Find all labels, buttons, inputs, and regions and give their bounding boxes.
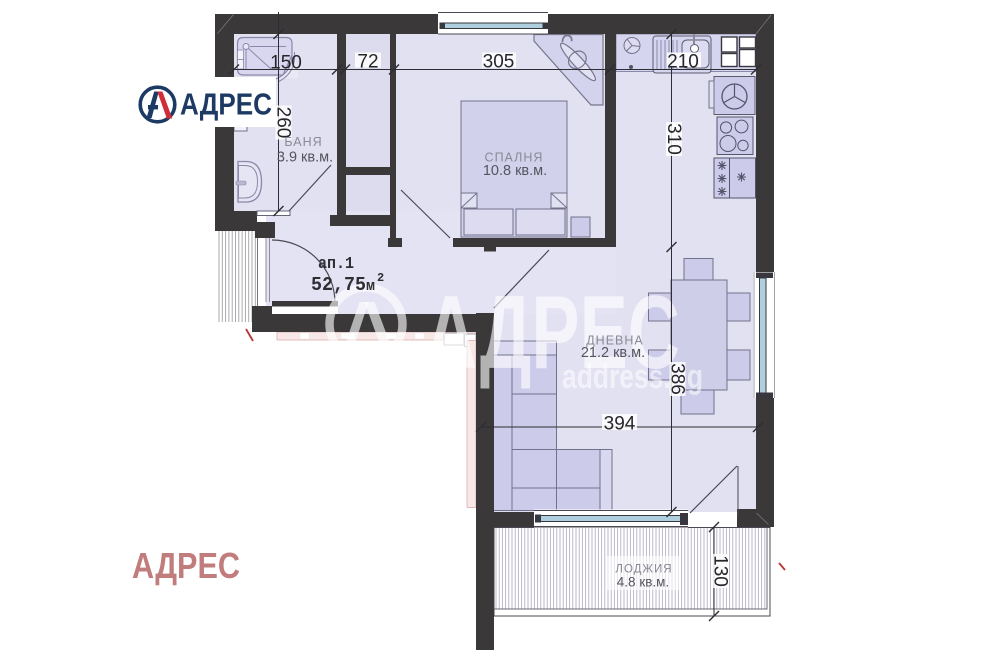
svg-text:305: 305 bbox=[483, 52, 515, 73]
svg-text:АДРЕС: АДРЕС bbox=[132, 545, 240, 586]
svg-text:394: 394 bbox=[604, 414, 636, 435]
svg-text:10.8 кв.м.: 10.8 кв.м. bbox=[483, 163, 547, 179]
svg-text:м: м bbox=[366, 278, 375, 295]
svg-text:210: 210 bbox=[667, 52, 699, 73]
svg-text:130: 130 bbox=[710, 555, 731, 587]
svg-text:21.2 кв.м.: 21.2 кв.м. bbox=[581, 345, 645, 361]
svg-text:2: 2 bbox=[377, 271, 384, 285]
svg-text:АДРЕС: АДРЕС bbox=[180, 87, 272, 122]
svg-text:4.8 кв.м.: 4.8 кв.м. bbox=[617, 575, 669, 590]
svg-text:310: 310 bbox=[663, 123, 684, 155]
svg-text:386: 386 bbox=[667, 363, 688, 395]
svg-text:72: 72 bbox=[357, 52, 378, 73]
svg-text:ап.1: ап.1 bbox=[318, 255, 354, 274]
svg-text:3.9 кв.м.: 3.9 кв.м. bbox=[277, 150, 333, 166]
svg-text:БАНЯ: БАНЯ bbox=[284, 135, 322, 149]
svg-text:52,75: 52,75 bbox=[311, 274, 366, 296]
svg-text:150: 150 bbox=[270, 53, 302, 74]
